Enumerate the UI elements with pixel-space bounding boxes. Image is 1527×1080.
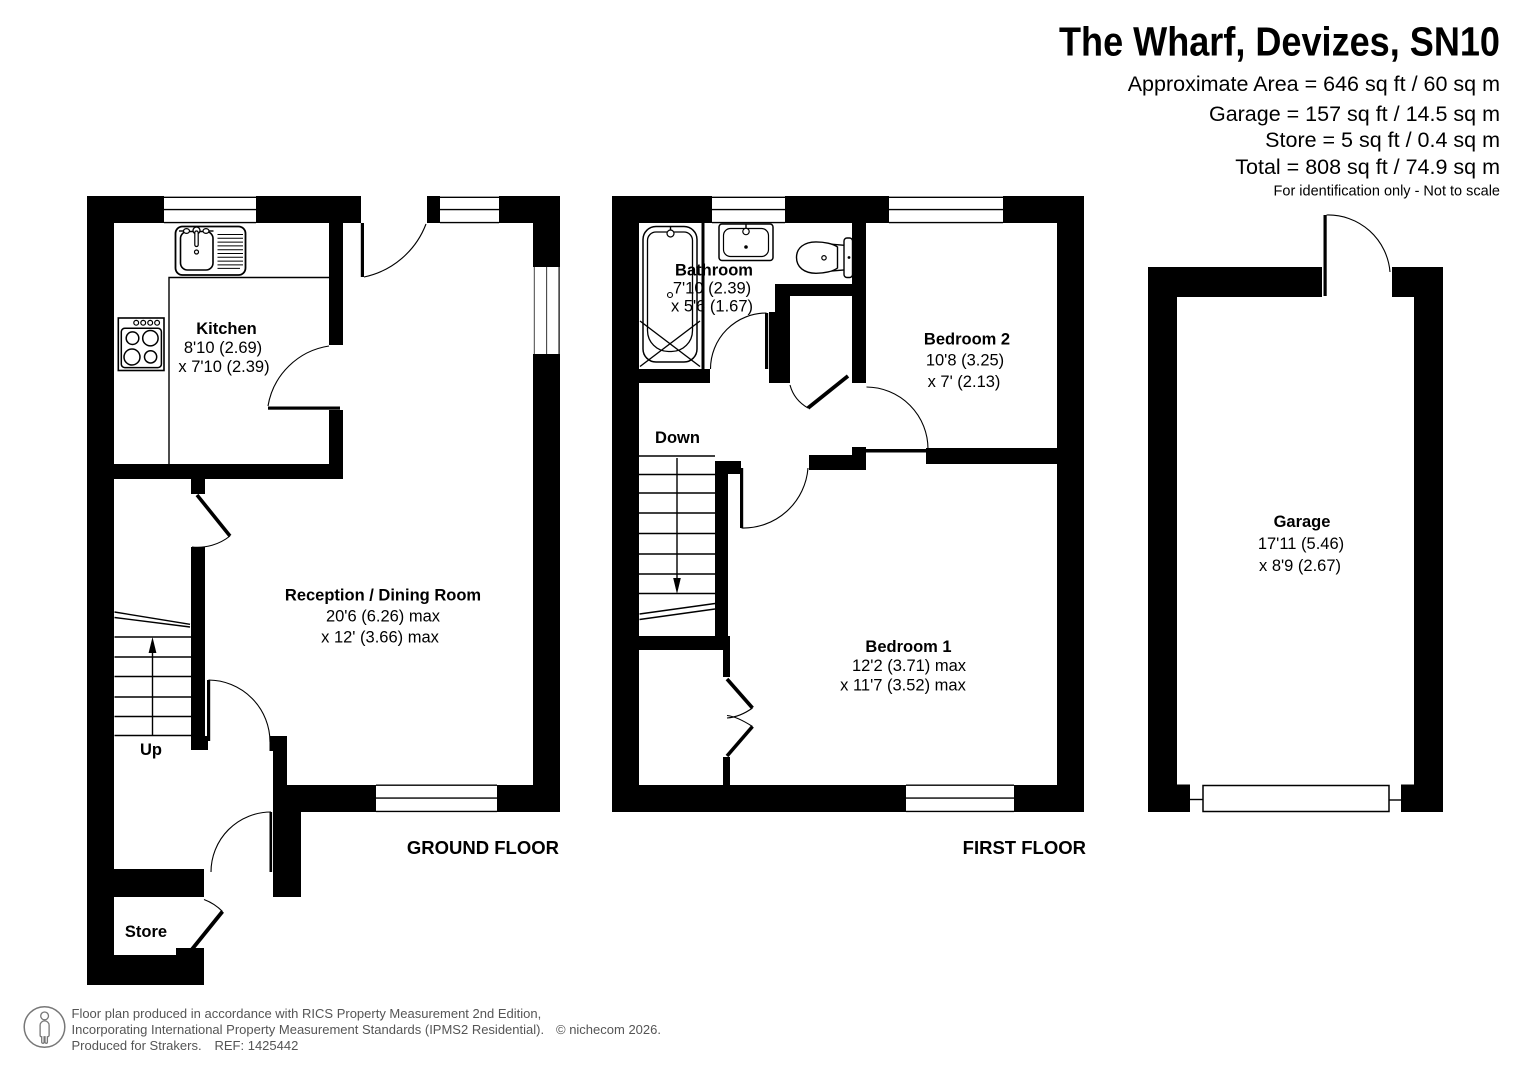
svg-text:Garage: Garage bbox=[1274, 513, 1331, 531]
svg-text:x 11'7 (3.52) max: x 11'7 (3.52) max bbox=[840, 677, 966, 695]
svg-text:17'11 (5.46): 17'11 (5.46) bbox=[1258, 535, 1344, 553]
svg-text:Approximate Area = 646 sq ft /: Approximate Area = 646 sq ft / 60 sq m bbox=[1128, 72, 1500, 96]
svg-text:x 7'10 (2.39): x 7'10 (2.39) bbox=[178, 358, 269, 376]
svg-text:The Wharf, Devizes, SN10: The Wharf, Devizes, SN10 bbox=[1059, 19, 1500, 65]
svg-text:Floor plan produced in accorda: Floor plan produced in accordance with R… bbox=[72, 1006, 542, 1021]
svg-text:x 8'9 (2.67): x 8'9 (2.67) bbox=[1259, 557, 1341, 575]
svg-text:12'2 (3.71) max: 12'2 (3.71) max bbox=[852, 657, 967, 675]
svg-text:© nichecom 2026.: © nichecom 2026. bbox=[556, 1022, 661, 1037]
svg-text:For identification only - Not: For identification only - Not to scale bbox=[1274, 184, 1500, 200]
svg-text:x 12' (3.66) max: x 12' (3.66) max bbox=[321, 629, 440, 647]
svg-text:7'10 (2.39): 7'10 (2.39) bbox=[673, 280, 751, 298]
svg-text:Bedroom 2: Bedroom 2 bbox=[924, 331, 1010, 349]
svg-text:Bathroom: Bathroom bbox=[675, 262, 753, 280]
svg-text:Produced for Strakers.: Produced for Strakers. bbox=[72, 1038, 202, 1053]
svg-text:Up: Up bbox=[140, 741, 162, 759]
svg-text:x 7' (2.13): x 7' (2.13) bbox=[928, 373, 1001, 391]
svg-text:Down: Down bbox=[655, 429, 700, 447]
svg-text:Garage = 157 sq ft / 14.5 sq m: Garage = 157 sq ft / 14.5 sq m bbox=[1209, 102, 1500, 126]
svg-text:Incorporating International Pr: Incorporating International Property Mea… bbox=[72, 1022, 545, 1037]
svg-text:10'8 (3.25): 10'8 (3.25) bbox=[926, 352, 1004, 370]
svg-text:8'10 (2.69): 8'10 (2.69) bbox=[184, 339, 262, 357]
svg-text:x 5'6 (1.67): x 5'6 (1.67) bbox=[671, 298, 753, 316]
svg-text:REF: 1425442: REF: 1425442 bbox=[215, 1038, 299, 1053]
svg-text:20'6 (6.26) max: 20'6 (6.26) max bbox=[326, 608, 441, 626]
svg-text:Kitchen: Kitchen bbox=[196, 320, 257, 338]
svg-text:Reception / Dining Room: Reception / Dining Room bbox=[285, 587, 481, 605]
svg-text:FIRST FLOOR: FIRST FLOOR bbox=[963, 837, 1086, 858]
svg-text:GROUND FLOOR: GROUND FLOOR bbox=[407, 837, 559, 858]
svg-text:Store: Store bbox=[125, 923, 167, 941]
svg-text:Total = 808 sq ft / 74.9 sq m: Total = 808 sq ft / 74.9 sq m bbox=[1235, 155, 1500, 179]
svg-text:Bedroom 1: Bedroom 1 bbox=[865, 638, 951, 656]
svg-text:Store = 5 sq ft / 0.4 sq m: Store = 5 sq ft / 0.4 sq m bbox=[1265, 128, 1500, 152]
